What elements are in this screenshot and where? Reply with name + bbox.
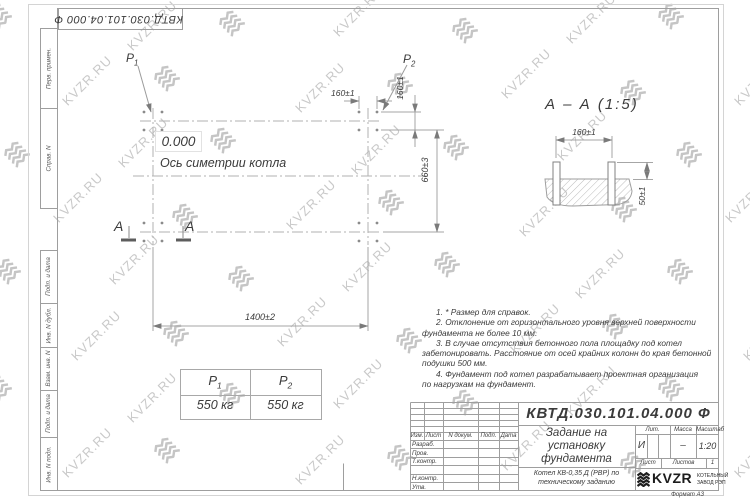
titleblock-sheets-label: Листов — [661, 460, 706, 466]
drawing-sheet: KVZR.RUKVZR.RUKVZR.RUKVZR.RUKVZR.RUKVZR.… — [0, 0, 750, 500]
titleblock-scale-value: 1:20 — [696, 434, 719, 458]
load-table-value-p2: 550 кг — [250, 398, 321, 412]
dim-160-horizontal-label: 160±1 — [331, 88, 355, 98]
titleblock-row-prov: Пров. — [412, 450, 428, 457]
top-stamp-doc-number: КВТД.030.101.04.000 Ф — [58, 8, 183, 30]
titleblock-hdr-izm: Изм. — [410, 433, 424, 439]
note-3b: забетонировать. Расстояние от осей крайн… — [422, 348, 720, 358]
note-2b: фундамента не более 10 мм. — [422, 328, 720, 338]
elevation-mark: 0.000 — [155, 131, 202, 152]
kvzr-logo-text: KVZR — [652, 470, 692, 486]
note-4: 4. Фундамент под котел разрабатывает про… — [422, 369, 720, 379]
notes-block: 1. * Размер для справок. 2. Отклонение о… — [422, 307, 720, 389]
margin-col-podp-data-2: Подп. и дата — [40, 390, 57, 437]
titleblock-hdr-podp: Подп. — [478, 433, 499, 439]
note-1: 1. * Размер для справок. — [422, 307, 720, 317]
note-3c: подушки 500 мм. — [422, 358, 720, 368]
titleblock-row-tkontr: Т.контр. — [412, 458, 437, 465]
section-title: А – А (1:5) — [545, 96, 639, 113]
titleblock-subtitle-line2: техническому заданию — [518, 479, 635, 486]
format-label: Формат А3 — [660, 492, 715, 498]
load-p1-base: P — [126, 51, 134, 65]
titleblock-title-line3: фундамента — [518, 453, 635, 465]
titleblock-lit-label: Лит. — [635, 427, 670, 433]
dim-width-label: 1400±2 — [230, 312, 290, 322]
section-dim-height-label: 50±1 — [637, 181, 647, 211]
load-p1-sub: 1 — [134, 58, 138, 67]
symmetry-axis-label: Ось симетрии котла — [160, 156, 286, 170]
load-p1-label: P1 — [126, 51, 138, 67]
titleblock-hdr-doc: N докум. — [443, 433, 478, 439]
titleblock-mass-label: Масса — [670, 427, 696, 433]
titleblock-scale-label: Масштаб — [696, 427, 719, 433]
titleblock-subtitle-line1: Котел КВ-0,35 Д (РВР) по — [518, 470, 635, 477]
kvzr-logo-caption-line1: КОТЕЛЬНЫЙ — [697, 473, 728, 479]
titleblock-hdr-list: Лист — [424, 433, 443, 439]
titleblock-lit-value: И — [635, 434, 648, 458]
load-table-value-p1: 550 кг — [180, 398, 250, 412]
section-letter-left: A — [114, 218, 123, 234]
section-letter-right: A — [185, 218, 194, 234]
load-p2-label: P2 — [403, 52, 415, 68]
section-cut-marks — [121, 226, 191, 240]
section-dim-spacing-label: 160±1 — [564, 127, 604, 137]
table-p1-sub: 1 — [217, 381, 222, 391]
load-table-header-p1: P1 — [180, 373, 250, 391]
dim-160-vertical-label: 160±1 — [395, 71, 405, 105]
drawing-linework — [0, 0, 750, 500]
margin-col-podp-data-1: Подп. и дата — [40, 250, 57, 303]
kvzr-logo-caption-line2: ЗАВОД РЭП — [697, 480, 726, 486]
kvzr-logo-icon — [637, 472, 650, 492]
load-p2-sub: 2 — [411, 59, 415, 68]
titleblock-row-utv: Утв. — [412, 484, 426, 491]
titleblock-mass-value: – — [670, 434, 696, 458]
load-p2-base: P — [403, 52, 411, 66]
note-3: 3. В случае отсутствия бетонного пола пл… — [422, 338, 720, 348]
titleblock-doc-number: КВТД.030.101.04.000 Ф — [518, 403, 719, 425]
margin-col-perv-primen: Перв. примен. — [40, 28, 57, 108]
margin-col-inv-dubl: Инв. N дубл. — [40, 303, 57, 347]
margin-col-vzam-inv: Взам. инв. N — [40, 347, 57, 390]
titleblock-row-razrab: Разраб. — [412, 441, 434, 448]
note-4b: по нагрузкам на фундамент. — [422, 379, 720, 389]
titleblock-hdr-data: Дата — [499, 433, 518, 439]
margin-col-inv-podl: Инв. N подл. — [40, 437, 57, 491]
dim-height-label: 660±3 — [420, 150, 430, 190]
table-p2-sub: 2 — [287, 381, 292, 391]
titleblock-row-nkontr: Н.контр. — [412, 475, 438, 482]
titleblock-title-line2: установку — [518, 440, 635, 452]
note-2: 2. Отклонение от горизонтального уровня … — [422, 317, 720, 327]
titleblock-sheet-label: Лист — [635, 460, 661, 466]
load-table-header-p2: P2 — [250, 373, 321, 391]
table-p1-base: P — [208, 373, 217, 388]
margin-col-sprav-n: Справ. N — [40, 108, 57, 208]
titleblock-sheets-value: 1 — [706, 460, 719, 466]
titleblock-title-line1: Задание на — [518, 427, 635, 439]
